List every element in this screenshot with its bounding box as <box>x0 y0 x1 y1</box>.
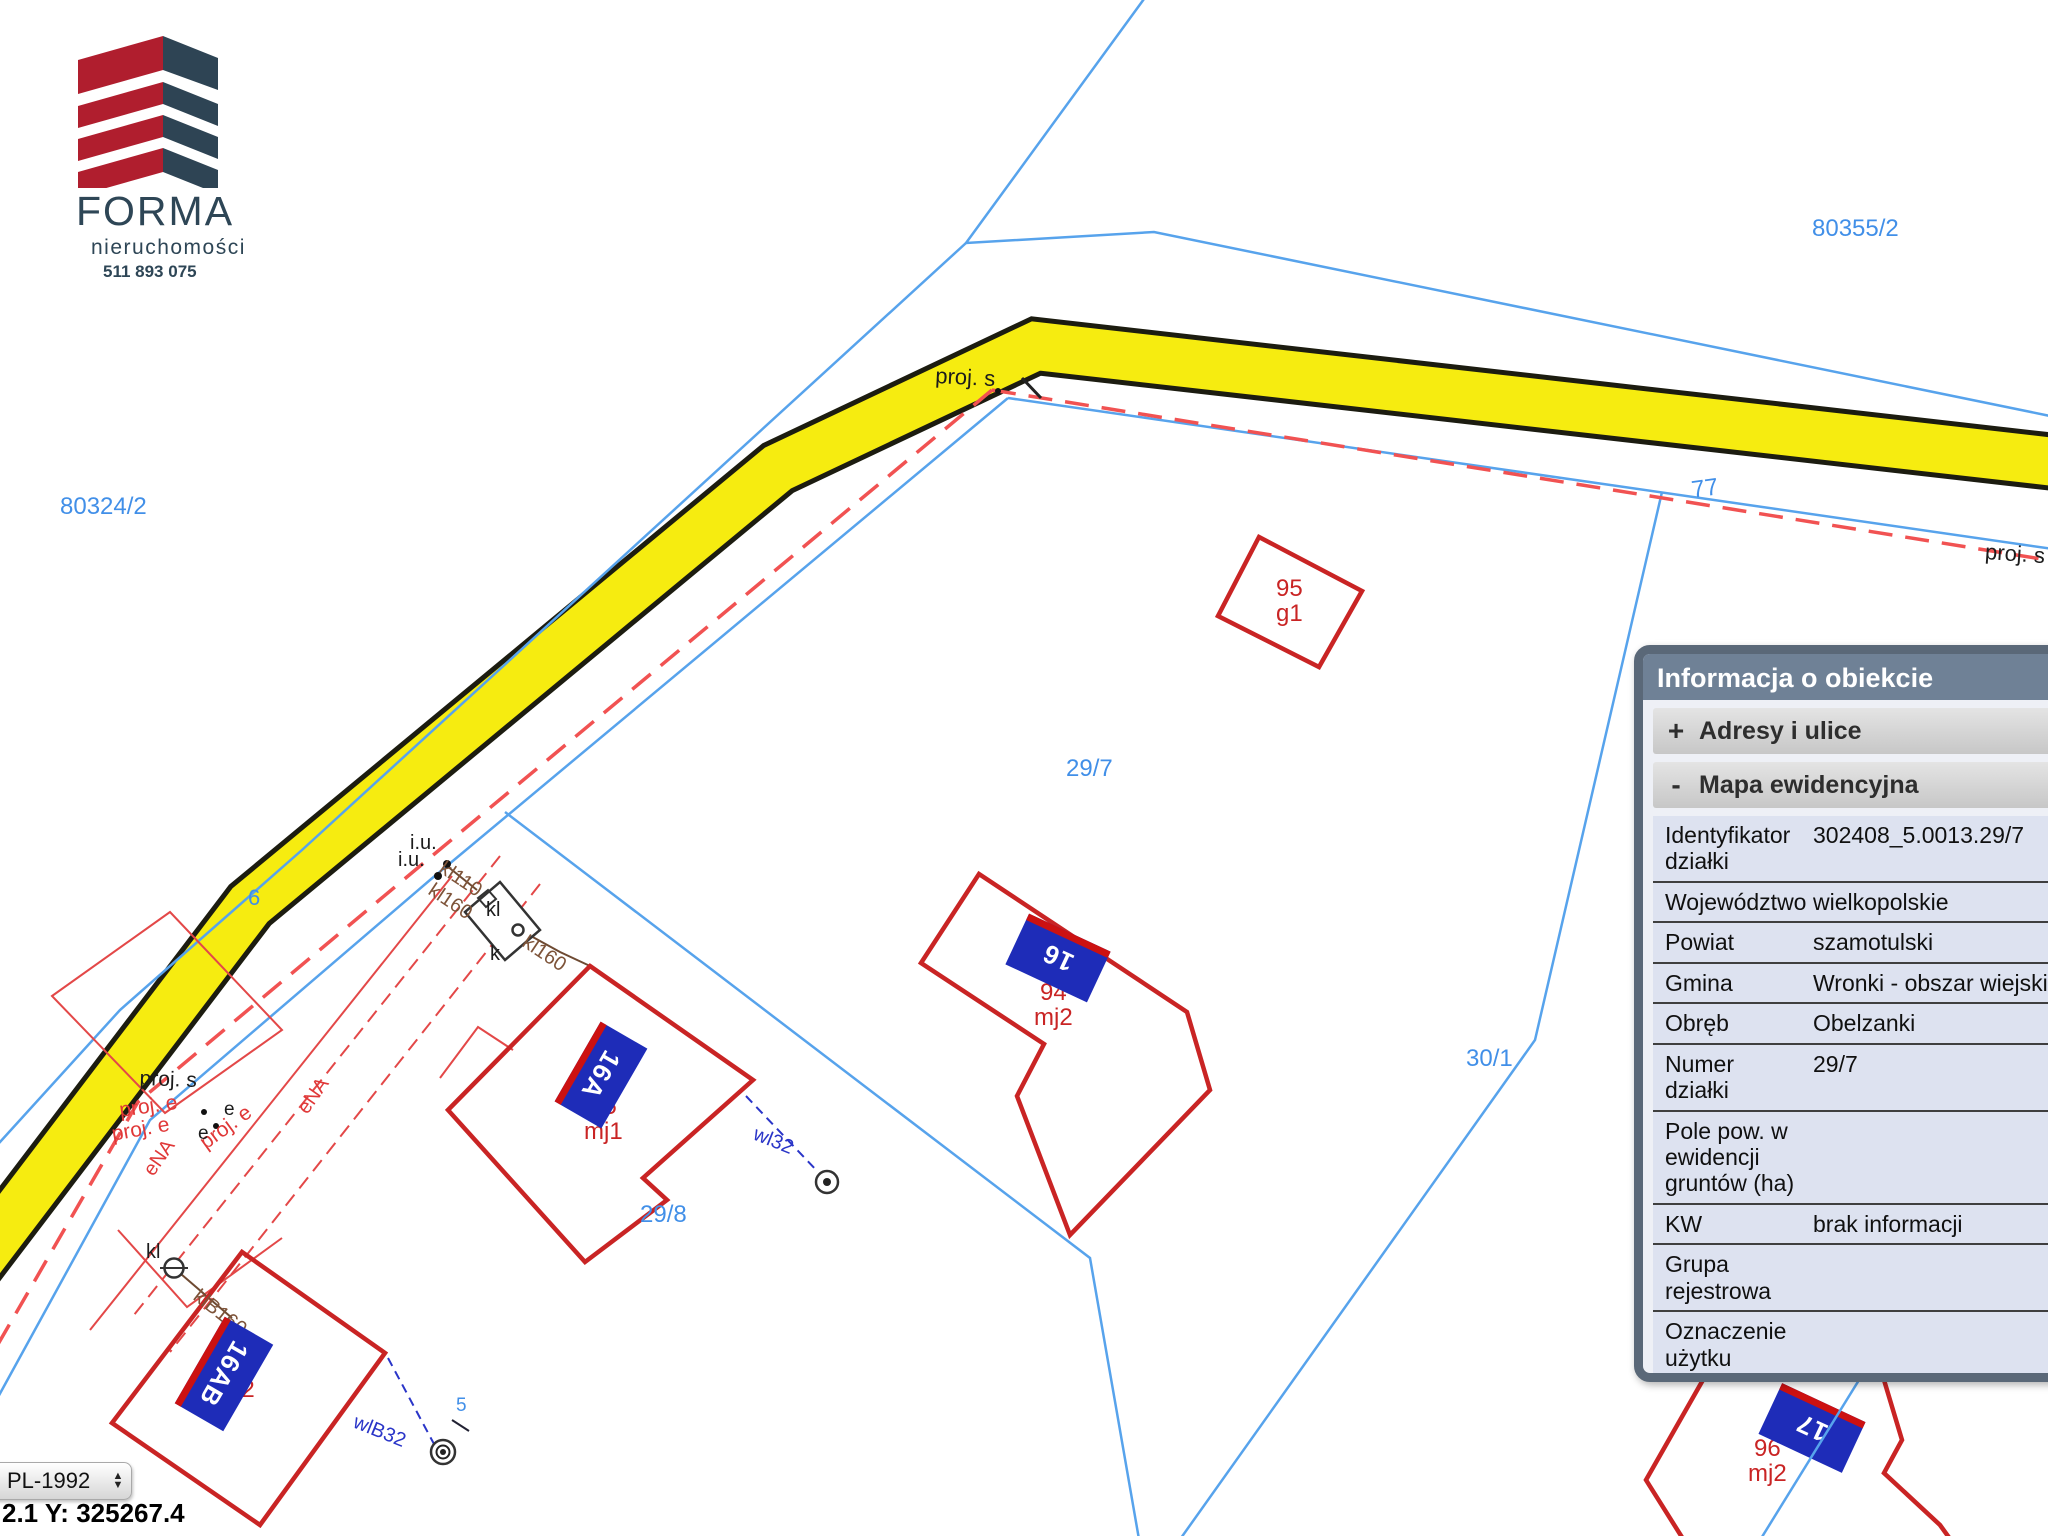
attribute-value: brak informacji <box>1803 1205 2048 1243</box>
building-95-g1-outline <box>1218 537 1362 667</box>
attribute-row: Województwowielkopolskie <box>1653 883 2048 923</box>
tank-circle-symbol <box>513 925 524 936</box>
attribute-row: Identyfikator działki302408_5.0013.29/7 <box>1653 816 2048 883</box>
attribute-row: GminaWronki - obszar wiejski <box>1653 964 2048 1004</box>
cursor-coordinates: 2.1 Y: 325267.4 <box>2 1498 185 1529</box>
panel-accordions: +Adresy i ulice-Mapa ewidencyjna <box>1643 708 2048 808</box>
attribute-value: Wronki - obszar wiejski <box>1803 964 2048 1002</box>
attribute-label: Obręb <box>1653 1004 1803 1042</box>
logo-subtitle: nieruchomości <box>91 236 246 260</box>
attribute-label: Oznaczenie użytku <box>1653 1312 1803 1377</box>
attribute-value <box>1803 1379 2048 1382</box>
company-logo: FORMA nieruchomości 511 893 075 <box>70 28 310 298</box>
wlb32-hydrant-dot <box>440 1449 446 1455</box>
building-95-mj1-outline <box>448 966 753 1262</box>
crs-select[interactable]: PL-1992 ▲▼ <box>0 1462 132 1500</box>
attribute-value: 302408_5.0013.29/7 <box>1803 816 2048 881</box>
attribute-label: Województwo <box>1653 883 1803 921</box>
ena-line <box>90 876 452 1330</box>
attribute-label: Gmina <box>1653 964 1803 1002</box>
crs-select-value: PL-1992 <box>0 1468 105 1494</box>
attribute-value: wielkopolskie <box>1803 883 2048 921</box>
attribute-value: 29/7 <box>1803 1045 2048 1110</box>
thin-red-corner-16ab <box>118 1230 282 1307</box>
panel-title: Informacja o obiekcie <box>1643 654 2048 700</box>
parcel-line-30-1 <box>1176 492 1662 1536</box>
accordion-label: Mapa ewidencyjna <box>1699 771 1919 800</box>
attribute-value <box>1803 1245 2048 1310</box>
logo-building-icon <box>70 28 230 188</box>
select-arrows-icon: ▲▼ <box>105 1472 131 1490</box>
logo-company-name: FORMA <box>76 188 234 235</box>
accordion-label: Adresy i ulice <box>1699 717 1862 746</box>
attribute-label: Oznaczenie konturu <box>1653 1379 1803 1382</box>
building-92-mj2-outline <box>112 1252 385 1525</box>
septic-tank-symbol <box>465 882 540 960</box>
accordion-section-adresy-i-ulice[interactable]: +Adresy i ulice <box>1653 708 2048 754</box>
cluster-point-2 <box>213 1123 219 1129</box>
attribute-row: Grupa rejestrowa <box>1653 1245 2048 1312</box>
logo-phone: 511 893 075 <box>103 262 197 282</box>
attribute-value <box>1803 1112 2048 1203</box>
building-94-mj2-outline <box>921 874 1210 1235</box>
attribute-row: KWbrak informacji <box>1653 1205 2048 1245</box>
attribute-value: Obelzanki <box>1803 1004 2048 1042</box>
attribute-label: Numer działki <box>1653 1045 1803 1110</box>
panel-attribute-table: Identyfikator działki302408_5.0013.29/7W… <box>1653 816 2048 1382</box>
attribute-label: Grupa rejestrowa <box>1653 1245 1803 1310</box>
iu-point-1 <box>443 860 451 868</box>
accordion-toggle-icon[interactable]: - <box>1653 769 1699 801</box>
bend-point <box>995 388 1001 394</box>
object-info-panel: Informacja o obiekcie +Adresy i ulice-Ma… <box>1634 645 2048 1382</box>
attribute-row: Oznaczenie użytku <box>1653 1312 2048 1379</box>
wlb32-line <box>388 1358 434 1444</box>
wl32-line <box>746 1096 818 1172</box>
accordion-section-mapa-ewidencyjna[interactable]: -Mapa ewidencyjna <box>1653 762 2048 808</box>
accordion-toggle-icon[interactable]: + <box>1653 715 1699 747</box>
attribute-label: Pole pow. w ewidencji gruntów (ha) <box>1653 1112 1803 1203</box>
attribute-label: Powiat <box>1653 923 1803 961</box>
attribute-value: szamotulski <box>1803 923 2048 961</box>
cluster-point-1 <box>201 1109 207 1115</box>
attribute-row: Oznaczenie konturu <box>1653 1379 2048 1382</box>
attribute-label: Identyfikator działki <box>1653 816 1803 881</box>
attribute-label: KW <box>1653 1205 1803 1243</box>
attribute-row: Powiatszamotulski <box>1653 923 2048 963</box>
attribute-value <box>1803 1312 2048 1377</box>
point-5-tick <box>452 1420 469 1431</box>
attribute-row: Pole pow. w ewidencji gruntów (ha) <box>1653 1112 2048 1205</box>
wl32-hydrant-dot <box>823 1178 831 1186</box>
attribute-row: ObrębObelzanki <box>1653 1004 2048 1044</box>
iu-point-2 <box>434 872 442 880</box>
attribute-row: Numer działki29/7 <box>1653 1045 2048 1112</box>
